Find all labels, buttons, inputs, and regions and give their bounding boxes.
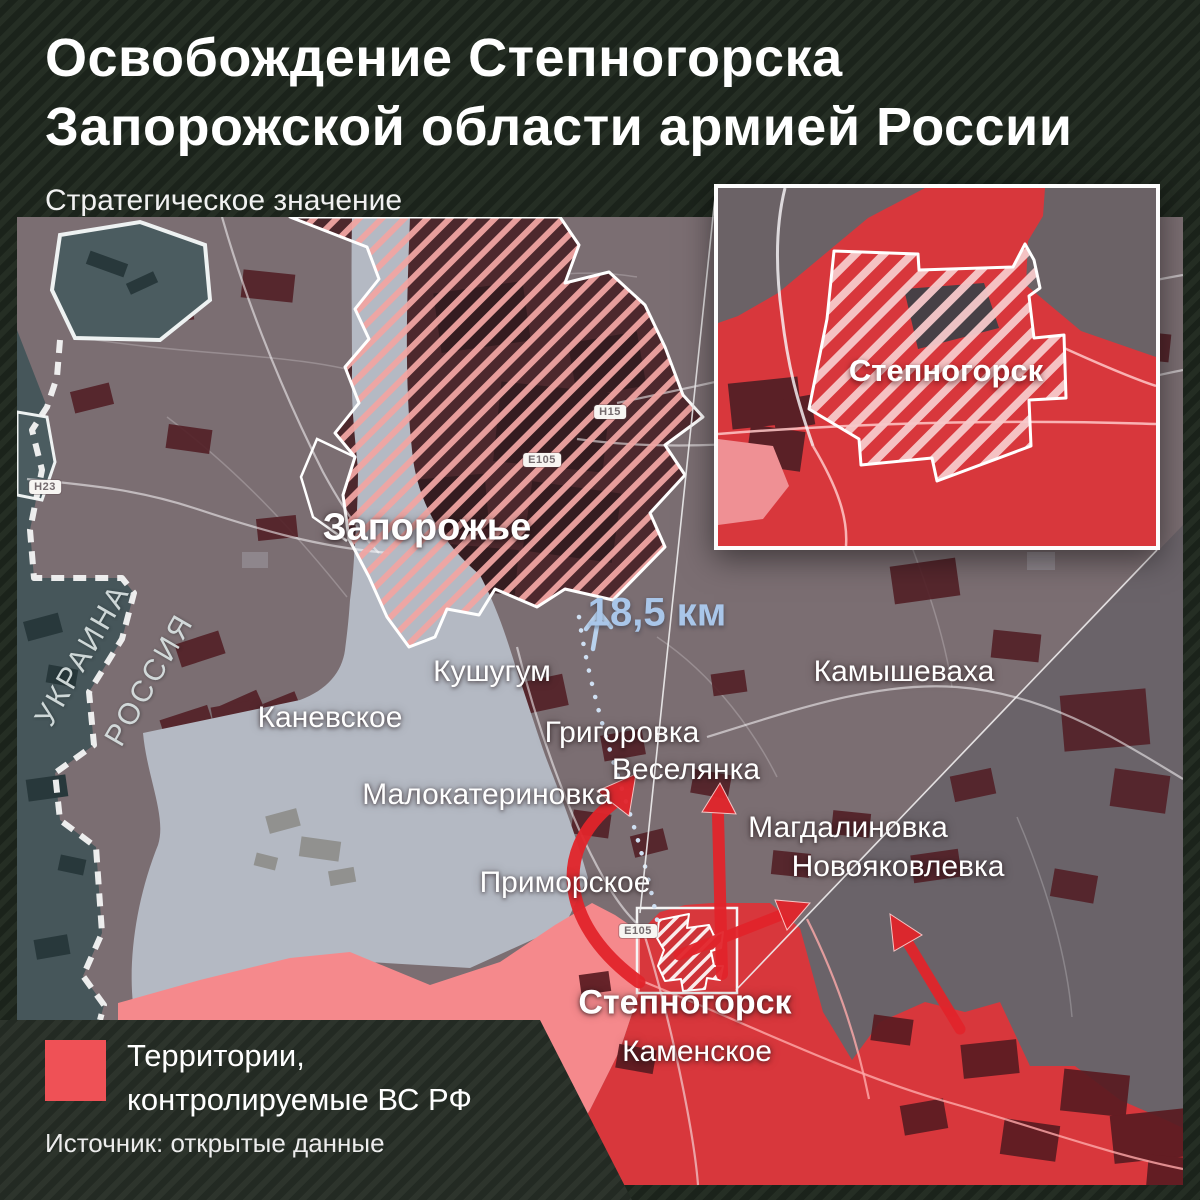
title-line-1: Освобождение Степногорска [45, 24, 1072, 93]
source-note: Источник: открытые данные [45, 1128, 385, 1159]
legend-label: Территории, контролируемые ВС РФ [127, 1034, 472, 1122]
legend-label-line2: контролируемые ВС РФ [127, 1078, 472, 1122]
header: Освобождение Степногорска Запорожской об… [45, 24, 1072, 218]
page-subtitle: Стратегическое значение [45, 184, 1072, 218]
page-title: Освобождение Степногорска Запорожской об… [45, 24, 1072, 162]
infographic-page: { "header": { "title_line1": "Освобожден… [0, 0, 1200, 1200]
legend-color-swatch [45, 1040, 106, 1101]
title-line-2: Запорожской области армией России [45, 93, 1072, 162]
legend-label-line1: Территории, [127, 1034, 472, 1078]
inset-city-label: Степногорск [849, 353, 1043, 389]
inset-map: Степногорск [714, 184, 1160, 550]
